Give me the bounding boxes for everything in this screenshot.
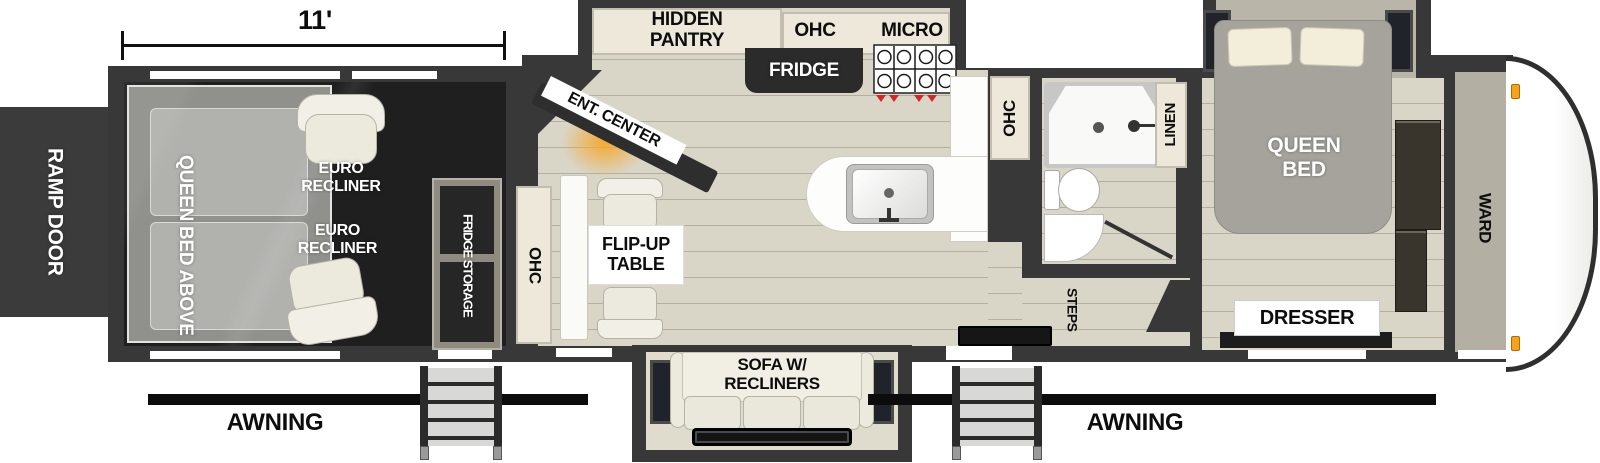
fridge: FRIDGE [745, 48, 863, 93]
step-treads [960, 368, 1034, 446]
step-foot [493, 446, 502, 460]
cooktop-icon [873, 44, 957, 94]
dinette-chair-2-back [597, 319, 663, 339]
body-top-notch [966, 0, 1203, 68]
pillow-1 [1227, 27, 1292, 67]
awning-left-label: AWNING [215, 410, 335, 436]
queen-bed-above-labelbox: QUEEN BED ABOVE [152, 120, 218, 370]
step-rail [1034, 366, 1042, 446]
euro-recliner-2 [278, 250, 391, 352]
flip-up-table-label: FLIP-UP TABLE [591, 235, 681, 275]
garage-entry-door [438, 350, 492, 359]
bedroom-bottom-window [1248, 350, 1366, 359]
living-ohc-label: OHC [525, 247, 544, 284]
step-treads [428, 368, 494, 446]
awning-right-label: AWNING [1075, 410, 1195, 436]
entry-steps-right [952, 366, 1042, 462]
sofa-label: SOFA W/ RECLINERS [716, 356, 828, 393]
ramp-door-label: RAMP DOOR [41, 148, 68, 276]
marker-light-top-icon [1511, 84, 1520, 99]
wardrobe-lower [1395, 230, 1427, 312]
pillow-2 [1299, 27, 1364, 67]
fridge-storage-label: FRIDGE STORAGE [460, 214, 475, 317]
sink-drain-icon [884, 188, 894, 198]
faucet-base-icon [879, 218, 899, 222]
linen-label: LINEN [1163, 103, 1180, 147]
entry-steps-left [420, 366, 502, 462]
steps-labelbox: STEPS [1052, 276, 1092, 344]
vent-mark-icon [914, 95, 924, 102]
kitchen-right-ohc-label: OHC [1001, 100, 1020, 137]
living-ohc-cabinet: OHC [516, 186, 552, 344]
bottom-window-gap [556, 348, 612, 357]
fridge-label: FRIDGE [769, 60, 839, 81]
euro-recliner-1-label: EURO RECLINER [290, 160, 392, 196]
vent-mark-icon [927, 95, 937, 102]
dimension-tick-right [503, 31, 506, 60]
step-foot [952, 446, 961, 460]
corridor-bottom-gap [1458, 350, 1508, 359]
steps-label: STEPS [1064, 288, 1079, 331]
linen-cabinet: LINEN [1155, 82, 1187, 168]
kitchen-right-ohc-cabinet: OHC [990, 76, 1030, 160]
sofa-cushion-2 [743, 396, 801, 430]
garage-top-window [150, 71, 340, 79]
ramp-door: RAMP DOOR [0, 107, 110, 317]
dimension-tick-left [121, 31, 124, 60]
step-rail [494, 366, 502, 446]
rug [692, 428, 852, 446]
queen-bed-above-label: QUEEN BED ABOVE [172, 155, 198, 336]
shower-drain-icon [1093, 122, 1104, 133]
dresser-label: DRESSER [1260, 307, 1355, 329]
sofa-cushion-1 [684, 396, 741, 430]
dinette-chair-2-seat [603, 287, 657, 323]
step-foot [1033, 446, 1042, 460]
ward-label: WARD [1475, 193, 1494, 243]
ward-labelbox: WARD [1462, 172, 1506, 264]
flip-up-table-labelbox: FLIP-UP TABLE [588, 225, 684, 285]
step-foot [420, 446, 429, 460]
main-entry-door [946, 346, 1012, 360]
wardrobe-upper [1395, 120, 1441, 230]
micro-label: MICRO [872, 21, 952, 42]
euro-recliner-1-seat [305, 114, 377, 164]
awning-left-line [148, 394, 588, 405]
rv-floorplan: 11' RAMP DOOR QUEEN BED ABOVE EURO RECLI… [0, 0, 1600, 463]
entry-mat [958, 326, 1052, 346]
flip-up-table-folded [560, 175, 588, 340]
toilet [1058, 168, 1100, 212]
vent-mark-icon [876, 95, 886, 102]
hidden-pantry-label: HIDDEN PANTRY [632, 10, 742, 52]
vent-mark-icon [889, 95, 899, 102]
dresser-labelbox: DRESSER [1234, 300, 1380, 336]
garage-top-window-2 [352, 71, 437, 79]
kitchen-ohc-label: OHC [775, 21, 855, 42]
queen-bed-label: QUEEN BED [1262, 134, 1346, 181]
step-rail [420, 366, 428, 446]
marker-light-bottom-icon [1511, 336, 1520, 351]
fridge-storage-labelbox: FRIDGE STORAGE [432, 180, 502, 350]
step-rail [952, 366, 960, 446]
dimension-line [122, 44, 505, 47]
dimension-label: 11' [280, 6, 350, 36]
front-cap [1506, 56, 1598, 372]
sofa-cushion-3 [803, 396, 860, 430]
